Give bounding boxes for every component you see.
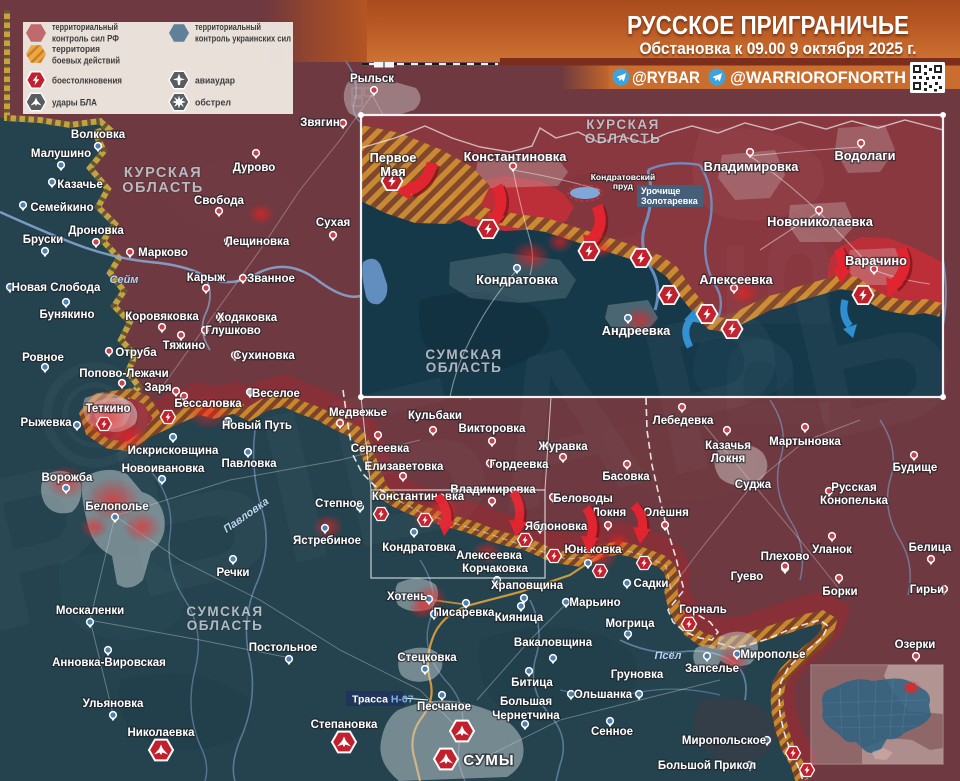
svg-text:Хотень: Хотень <box>387 591 427 603</box>
svg-text:Запселье: Запселье <box>685 663 739 675</box>
svg-text:Храповщина: Храповщина <box>491 580 564 592</box>
svg-text:Озерки: Озерки <box>895 639 936 651</box>
svg-text:пруд: пруд <box>613 181 634 191</box>
svg-text:КУРСКАЯ: КУРСКАЯ <box>586 117 660 132</box>
svg-text:Волковка: Волковка <box>71 129 126 141</box>
svg-text:авиаудар: авиаудар <box>195 76 235 86</box>
svg-text:Уланок: Уланок <box>812 544 852 556</box>
svg-text:Казачье: Казачье <box>57 179 103 191</box>
svg-text:Груновка: Груновка <box>611 669 664 681</box>
svg-text:Битица: Битица <box>511 677 553 689</box>
svg-text:Бруски: Бруски <box>23 234 63 246</box>
svg-text:территориальный: территориальный <box>195 22 261 32</box>
svg-text:Юнаковка: Юнаковка <box>564 544 622 556</box>
svg-text:боевых действий: боевых действий <box>52 56 120 66</box>
svg-text:Дурово: Дурово <box>233 162 276 174</box>
svg-text:Большая: Большая <box>500 696 552 708</box>
svg-text:Карыж: Карыж <box>187 272 226 284</box>
svg-text:Малушино: Малушино <box>31 148 91 160</box>
svg-text:Садки: Садки <box>634 578 669 590</box>
svg-text:Николаевка: Николаевка <box>127 727 195 739</box>
svg-text:Лещиновка: Лещиновка <box>225 236 290 248</box>
svg-text:Марково: Марково <box>138 247 188 259</box>
svg-text:Ульяновка: Ульяновка <box>83 698 144 710</box>
svg-text:Сейм: Сейм <box>110 274 139 286</box>
svg-text:Постольное: Постольное <box>249 642 318 654</box>
svg-text:контроль украинских сил: контроль украинских сил <box>195 34 291 44</box>
svg-text:Мая: Мая <box>380 164 405 179</box>
svg-text:РБ: РБ <box>694 226 862 434</box>
svg-text:Чернетчина: Чернетчина <box>492 710 560 722</box>
svg-text:КУРСКАЯ: КУРСКАЯ <box>124 165 202 181</box>
svg-text:Новая Слобода: Новая Слобода <box>12 282 101 294</box>
svg-text:@RYBAR: @RYBAR <box>632 68 700 87</box>
svg-text:территориальный: территориальный <box>52 22 118 32</box>
svg-text:Борки: Борки <box>822 586 857 598</box>
svg-text:Большой Прикол: Большой Прикол <box>658 760 756 772</box>
svg-text:Плехово: Плехово <box>761 551 810 563</box>
svg-text:обстрел: обстрел <box>195 98 231 108</box>
svg-text:Золотаревка: Золотаревка <box>641 196 699 206</box>
svg-text:Кондратовка: Кондратовка <box>476 272 559 287</box>
svg-text:Отруба: Отруба <box>115 347 157 359</box>
svg-text:Горналь: Горналь <box>679 604 727 616</box>
svg-text:Семейкино: Семейкино <box>30 202 93 214</box>
svg-text:Сенное: Сенное <box>591 726 633 738</box>
svg-text:Марьино: Марьино <box>569 597 620 609</box>
svg-text:Дроновка: Дроновка <box>68 225 124 237</box>
svg-text:Конопелька: Конопелька <box>820 495 888 507</box>
svg-text:Могрица: Могрица <box>605 618 655 630</box>
svg-text:Владимировка: Владимировка <box>704 159 800 174</box>
svg-text:Тяжино: Тяжино <box>163 340 206 352</box>
svg-text:Вакаловщина: Вакаловщина <box>514 637 593 649</box>
svg-text:Гуево: Гуево <box>731 571 764 583</box>
svg-text:ОБЛАСТЬ: ОБЛАСТЬ <box>122 180 204 196</box>
svg-text:Ровное: Ровное <box>22 352 64 364</box>
svg-text:Сухая: Сухая <box>316 217 350 229</box>
svg-text:Трасса Н-07: Трасса Н-07 <box>352 694 414 706</box>
svg-text:Бунякино: Бунякино <box>40 309 95 321</box>
svg-text:Звягин: Звягин <box>300 117 340 129</box>
svg-text:Глушково: Глушково <box>205 325 261 337</box>
svg-text:Свобода: Свобода <box>194 195 245 207</box>
svg-text:контроль сил РФ: контроль сил РФ <box>52 34 119 44</box>
svg-text:Стецковка: Стецковка <box>397 652 457 664</box>
svg-text:Коровяковка: Коровяковка <box>125 311 199 323</box>
svg-text:ОБЛАСТЬ: ОБЛАСТЬ <box>585 131 662 146</box>
svg-text:Константиновка: Константиновка <box>464 149 568 164</box>
svg-text:территория: территория <box>52 44 100 54</box>
svg-text:Сухиновка: Сухиновка <box>233 350 295 362</box>
svg-text:@WARRIOROFNORTH: @WARRIOROFNORTH <box>730 68 906 87</box>
svg-text:Рыльск: Рыльск <box>350 73 394 85</box>
svg-text:боестолкновения: боестолкновения <box>52 76 122 86</box>
svg-text:Писаревка: Писаревка <box>434 607 496 619</box>
svg-text:Обстановка к 09.00 9 октября 2: Обстановка к 09.00 9 октября 2025 г. <box>640 39 917 58</box>
svg-text:Гирьи: Гирьи <box>910 584 944 596</box>
svg-text:Кияница: Кияница <box>495 612 544 624</box>
svg-text:удары БЛА: удары БЛА <box>52 98 97 108</box>
svg-text:Мирополье: Мирополье <box>740 649 805 661</box>
svg-text:Ольшанка: Ольшанка <box>574 689 633 701</box>
svg-text:Ходяковка: Ходяковка <box>217 312 278 324</box>
svg-text:Миропольское: Миропольское <box>682 735 766 747</box>
svg-text:Песчаное: Песчаное <box>417 701 471 713</box>
svg-text:Степановка: Степановка <box>311 719 378 731</box>
svg-text:Званное: Званное <box>247 273 295 285</box>
svg-text:Белица: Белица <box>909 542 952 554</box>
svg-text:Псёл: Псёл <box>655 650 682 662</box>
svg-text:Урочище: Урочище <box>641 186 680 196</box>
svg-text:РУССКОЕ ПРИГРАНИЧЬЕ: РУССКОЕ ПРИГРАНИЧЬЕ <box>627 10 909 40</box>
svg-text:Водолаги: Водолаги <box>835 148 896 163</box>
svg-text:Первое: Первое <box>370 150 417 165</box>
svg-text:СУМЫ: СУМЫ <box>463 752 514 769</box>
